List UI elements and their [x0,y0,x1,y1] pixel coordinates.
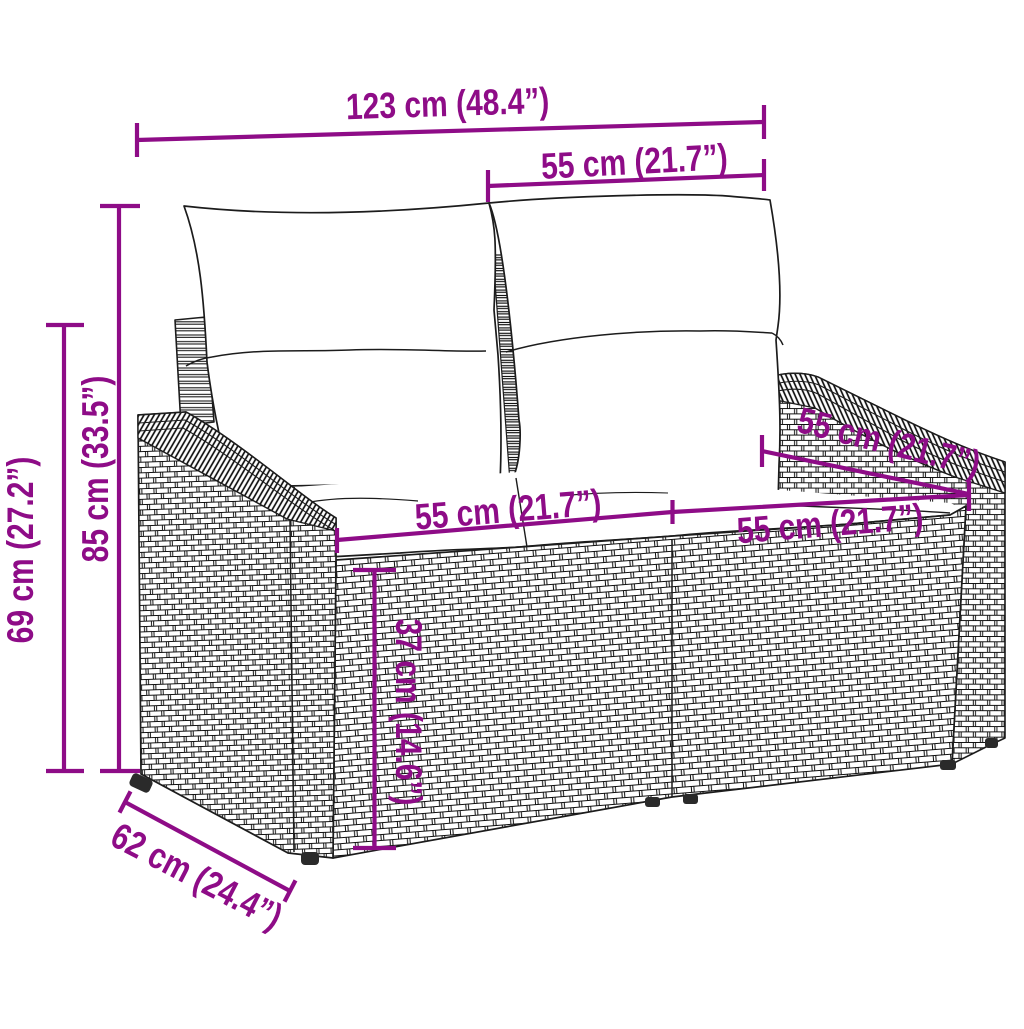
svg-text:123 cm (48.4”): 123 cm (48.4”) [345,81,550,128]
svg-text:85 cm (33.5”): 85 cm (33.5”) [76,376,116,563]
svg-text:37 cm (14.6”): 37 cm (14.6”) [387,619,427,806]
svg-text:69 cm (27.2”): 69 cm (27.2”) [1,457,41,644]
